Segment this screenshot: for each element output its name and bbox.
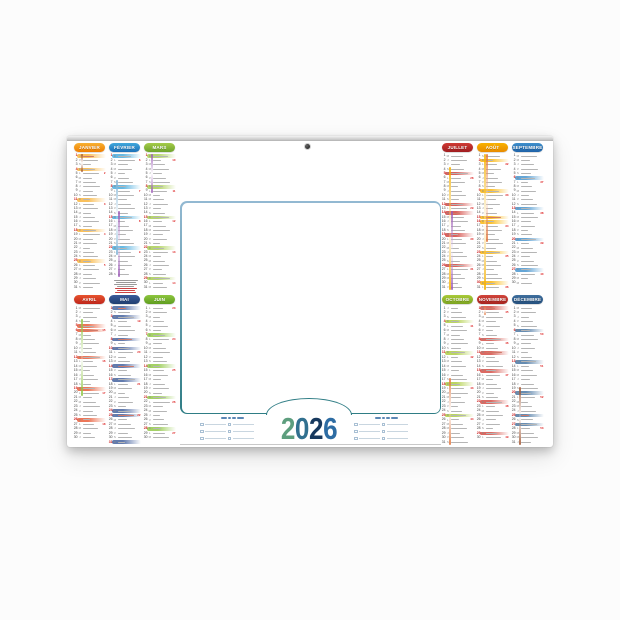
day-name-bar bbox=[451, 265, 464, 266]
day-letter: S bbox=[148, 360, 152, 363]
day-name-bar bbox=[486, 321, 496, 322]
day-name-bar bbox=[451, 221, 468, 222]
day-letter: S bbox=[113, 311, 117, 314]
day-number: 28 bbox=[108, 273, 113, 276]
month-days: 1D2L63M4M5J6V7S8D9L710M11M12J13V14S15D16… bbox=[108, 154, 141, 277]
month-label: DÉCEMBRE bbox=[514, 295, 541, 304]
day-name-bar bbox=[118, 415, 134, 416]
day-number: 31 bbox=[73, 286, 78, 289]
week-number: 44 bbox=[470, 418, 473, 421]
week-number: 40 bbox=[540, 273, 543, 276]
day-letter: M bbox=[148, 311, 152, 314]
day-letter: J bbox=[516, 347, 520, 350]
day-name-bar bbox=[153, 433, 165, 434]
day-name-bar bbox=[83, 312, 93, 313]
day-name-bar bbox=[83, 252, 94, 253]
day-name-bar bbox=[118, 357, 126, 358]
day-name-bar bbox=[83, 335, 91, 336]
day-name-bar bbox=[83, 226, 92, 227]
day-letter: M bbox=[516, 282, 520, 285]
day-name-bar bbox=[83, 195, 97, 196]
day-name-bar bbox=[153, 419, 164, 420]
day-number: 15 bbox=[108, 369, 113, 372]
day-letter: M bbox=[516, 185, 520, 188]
legend-line bbox=[233, 438, 254, 439]
day-name-bar bbox=[83, 424, 94, 425]
day-name-bar bbox=[118, 156, 131, 157]
day-name-bar bbox=[521, 308, 532, 309]
hanging-hole bbox=[305, 144, 310, 149]
day-letter: D bbox=[148, 277, 152, 280]
week-number: 52 bbox=[540, 396, 543, 399]
day-name-bar bbox=[83, 352, 96, 353]
day-letter: M bbox=[148, 378, 152, 381]
day-letter: S bbox=[113, 374, 117, 377]
week-number: 2 bbox=[104, 172, 106, 175]
day-name-bar bbox=[521, 283, 532, 284]
day-letter: V bbox=[481, 360, 485, 363]
day-letter: S bbox=[148, 242, 152, 245]
caption-dash bbox=[382, 417, 385, 419]
day-letter: D bbox=[481, 432, 485, 435]
day-name-bar bbox=[451, 433, 460, 434]
month-days: 1J2V3S4D5L416M7M8J9V10S11D12L4213M14M15J… bbox=[441, 306, 474, 445]
day-letter: J bbox=[148, 351, 152, 354]
day-name-bar bbox=[451, 415, 466, 416]
day-letter: M bbox=[516, 220, 520, 223]
school-vacation-bar bbox=[118, 211, 120, 277]
school-vacation-bar bbox=[81, 319, 83, 395]
day-name-bar bbox=[153, 230, 170, 231]
day-name-bar bbox=[153, 256, 161, 257]
day-name-bar bbox=[83, 317, 97, 318]
day-name-bar bbox=[83, 384, 91, 385]
day-letter: J bbox=[446, 369, 450, 372]
week-number: 18 bbox=[102, 423, 105, 426]
day-letter: M bbox=[481, 320, 485, 323]
day-name-bar bbox=[521, 178, 535, 179]
day-letter: J bbox=[148, 320, 152, 323]
day-number: 17 bbox=[441, 378, 446, 381]
day-letter: M bbox=[148, 410, 152, 413]
day-name-bar bbox=[486, 278, 502, 279]
month-header: MAI bbox=[109, 295, 140, 304]
day-letter: V bbox=[113, 268, 117, 271]
month-days: 1M2J3V4S5D6L157M8M9J10V11S12D13L1614M15M… bbox=[73, 306, 106, 441]
day-name-bar bbox=[153, 352, 170, 353]
day-name-bar bbox=[83, 397, 92, 398]
day-name-bar bbox=[83, 348, 92, 349]
day-name-bar bbox=[451, 339, 464, 340]
day-name-bar bbox=[486, 256, 493, 257]
day-number: 30 bbox=[511, 281, 516, 284]
month-column-10: OCTOBRE1J2V3S4D5L416M7M8J9V10S11D12L4213… bbox=[441, 295, 474, 445]
legend-line bbox=[205, 438, 226, 439]
day-name-bar bbox=[486, 419, 496, 420]
day-letter: D bbox=[481, 338, 485, 341]
day-letter: D bbox=[516, 360, 520, 363]
day-name-bar bbox=[521, 261, 534, 262]
caption-dash bbox=[221, 417, 227, 419]
day-row: 31M bbox=[143, 285, 176, 289]
day-row: 31D bbox=[108, 440, 141, 444]
day-letter: V bbox=[113, 369, 117, 372]
year-2026: 2026 bbox=[277, 415, 341, 443]
day-name-bar bbox=[486, 248, 496, 249]
day-name-bar bbox=[83, 173, 99, 174]
day-number: 15 bbox=[511, 369, 516, 372]
day-name-bar bbox=[521, 217, 538, 218]
day-name-bar bbox=[83, 321, 90, 322]
day-letter: V bbox=[113, 338, 117, 341]
day-name-bar bbox=[521, 402, 528, 403]
month-column-5: MAI1V2S3D4L195M6M7J8V9S10D11L2012M13M14J… bbox=[108, 295, 141, 445]
day-name-bar bbox=[521, 204, 537, 205]
day-name-bar bbox=[83, 287, 93, 288]
day-letter: S bbox=[148, 329, 152, 332]
week-number: 9 bbox=[139, 251, 141, 254]
day-letter: M bbox=[516, 307, 520, 310]
day-number: 15 bbox=[73, 369, 78, 372]
week-number: 34 bbox=[505, 225, 508, 228]
day-name-bar bbox=[153, 269, 162, 270]
day-name-bar bbox=[521, 191, 536, 192]
day-letter: S bbox=[516, 356, 520, 359]
day-letter: L bbox=[113, 414, 117, 417]
day-name-bar bbox=[486, 226, 498, 227]
day-name-bar bbox=[521, 379, 530, 380]
day-letter: V bbox=[516, 351, 520, 354]
week-number: 13 bbox=[172, 251, 175, 254]
day-name-bar bbox=[153, 221, 162, 222]
day-name-bar bbox=[153, 388, 169, 389]
day-letter: S bbox=[516, 233, 520, 236]
day-name-bar bbox=[118, 361, 130, 362]
day-name-bar bbox=[118, 397, 129, 398]
day-row: 31V bbox=[441, 285, 474, 289]
week-number: 38 bbox=[540, 212, 543, 215]
week-number: 53 bbox=[540, 427, 543, 430]
month-column-11: NOVEMBRE1D2L453M4M5J6V7S8D9L4610M11M12J1… bbox=[476, 295, 509, 441]
day-letter: J bbox=[516, 378, 520, 381]
week-number: 8 bbox=[139, 220, 141, 223]
month-label: FÉVRIER bbox=[114, 143, 135, 152]
day-letter: L bbox=[113, 383, 117, 386]
day-name-bar bbox=[118, 239, 130, 240]
month-label: JUILLET bbox=[448, 143, 468, 152]
day-letter: M bbox=[113, 360, 117, 363]
day-name-bar bbox=[153, 195, 160, 196]
legend-caption-marks bbox=[354, 417, 418, 419]
day-number: 30 bbox=[476, 436, 481, 439]
day-name-bar bbox=[486, 357, 495, 358]
day-name-bar bbox=[521, 239, 536, 240]
week-number: 16 bbox=[102, 360, 105, 363]
day-letter: M bbox=[113, 163, 117, 166]
day-number: 31 bbox=[511, 441, 516, 444]
day-name-bar bbox=[451, 419, 459, 420]
day-number: 31 bbox=[108, 441, 113, 444]
day-name-bar bbox=[83, 186, 100, 187]
month-column-3: MARS1D2L103M4M5J6V7S8D9L1110M11M12J13V14… bbox=[143, 143, 176, 290]
day-name-bar bbox=[118, 217, 132, 218]
month-header: JUIN bbox=[144, 295, 175, 304]
month-column-4: AVRIL1M2J3V4S5D6L157M8M9J10V11S12D13L161… bbox=[73, 295, 106, 441]
day-name-bar bbox=[153, 375, 168, 376]
day-letter: J bbox=[148, 414, 152, 417]
day-name-bar bbox=[486, 283, 495, 284]
day-letter: V bbox=[446, 311, 450, 314]
day-row: 28S bbox=[108, 272, 141, 276]
day-name-bar bbox=[118, 317, 134, 318]
month-header: AOÛT bbox=[477, 143, 508, 152]
day-name-bar bbox=[486, 243, 503, 244]
day-row: 31L36 bbox=[476, 285, 509, 289]
day-letter: M bbox=[148, 436, 152, 439]
day-letter: V bbox=[481, 423, 485, 426]
day-name-bar bbox=[118, 437, 132, 438]
week-number: 50 bbox=[540, 333, 543, 336]
day-letter: M bbox=[78, 432, 82, 435]
year-digit: 2 bbox=[309, 415, 323, 443]
day-letter: L bbox=[481, 436, 485, 439]
day-name-bar bbox=[153, 164, 165, 165]
day-letter: M bbox=[516, 338, 520, 341]
legend-line bbox=[387, 424, 408, 425]
day-name-bar bbox=[451, 424, 463, 425]
day-name-bar bbox=[521, 433, 534, 434]
legend-square bbox=[228, 437, 232, 441]
day-number: 30 bbox=[143, 436, 148, 439]
day-name-bar bbox=[118, 330, 135, 331]
day-name-bar bbox=[83, 437, 95, 438]
caption-dash bbox=[228, 417, 231, 419]
week-number: 4 bbox=[104, 233, 106, 236]
month-label: MARS bbox=[152, 143, 166, 152]
week-number: 33 bbox=[505, 194, 508, 197]
month-label: OCTOBRE bbox=[446, 295, 470, 304]
week-number: 46 bbox=[505, 342, 508, 345]
day-letter: M bbox=[113, 329, 117, 332]
caption-dash bbox=[237, 417, 244, 419]
day-name-bar bbox=[486, 375, 500, 376]
ad-insert-blank-area bbox=[182, 203, 440, 413]
day-name-bar bbox=[521, 195, 529, 196]
year-digit: 2 bbox=[281, 415, 295, 443]
day-row: 31J bbox=[511, 440, 544, 444]
legend-square bbox=[228, 430, 232, 434]
day-letter: M bbox=[481, 351, 485, 354]
day-name-bar bbox=[521, 411, 536, 412]
day-name-bar bbox=[521, 221, 531, 222]
month-header: MARS bbox=[144, 143, 175, 152]
day-name-bar bbox=[451, 256, 467, 257]
day-name-bar bbox=[521, 442, 531, 443]
day-letter: V bbox=[148, 325, 152, 328]
day-name-bar bbox=[118, 348, 129, 349]
day-name-bar bbox=[153, 317, 160, 318]
month-days: 1M2M3J4V5S6D7L378M9M10J11V12S13D14L3815M… bbox=[511, 154, 544, 286]
month-header: JANVIER bbox=[74, 143, 105, 152]
day-letter: V bbox=[78, 316, 82, 319]
day-letter: L bbox=[516, 365, 520, 368]
legend-square bbox=[228, 423, 232, 427]
day-name-bar bbox=[153, 379, 161, 380]
day-number: 17 bbox=[73, 378, 78, 381]
month-days: 1V2S3D4L195M6M7J8V9S10D11L2012M13M14J15V… bbox=[108, 306, 141, 445]
day-letter: S bbox=[113, 436, 117, 439]
month-header: AVRIL bbox=[74, 295, 105, 304]
day-number: 17 bbox=[511, 378, 516, 381]
day-name-bar bbox=[451, 178, 461, 179]
day-name-bar bbox=[521, 169, 538, 170]
day-letter: D bbox=[446, 351, 450, 354]
day-letter: D bbox=[148, 334, 152, 337]
day-name-bar bbox=[153, 411, 167, 412]
legend-line bbox=[205, 424, 226, 425]
day-letter: V bbox=[148, 356, 152, 359]
day-name-bar bbox=[118, 370, 127, 371]
day-name-bar bbox=[153, 397, 166, 398]
day-letter: L bbox=[516, 242, 520, 245]
day-name-bar bbox=[118, 375, 131, 376]
day-name-bar bbox=[153, 330, 161, 331]
week-number: 15 bbox=[102, 329, 105, 332]
week-number: 26 bbox=[172, 401, 175, 404]
day-name-bar bbox=[153, 308, 163, 309]
legend-text-bar bbox=[116, 282, 136, 283]
day-name-bar bbox=[118, 384, 128, 385]
month-days: 1M2J3V4S5D6L287M8M9J10V11S12D13L2914M15M… bbox=[441, 154, 474, 290]
day-letter: M bbox=[516, 311, 520, 314]
day-row: 31S bbox=[73, 285, 106, 289]
day-letter: S bbox=[148, 423, 152, 426]
day-letter: M bbox=[516, 374, 520, 377]
day-name-bar bbox=[153, 348, 166, 349]
day-letter: S bbox=[481, 427, 485, 430]
day-letter: J bbox=[78, 277, 82, 280]
month-header: FÉVRIER bbox=[109, 143, 140, 152]
day-name-bar bbox=[486, 437, 501, 438]
day-name-bar bbox=[451, 252, 463, 253]
day-name-bar bbox=[451, 164, 460, 165]
legend-row bbox=[354, 430, 418, 434]
day-name-bar bbox=[118, 321, 127, 322]
day-letter: V bbox=[446, 374, 450, 377]
week-number: 7 bbox=[139, 190, 141, 193]
day-name-bar bbox=[118, 402, 133, 403]
legend-line bbox=[359, 438, 380, 439]
week-number: 5 bbox=[104, 264, 106, 267]
day-name-bar bbox=[153, 335, 165, 336]
day-name-bar bbox=[451, 442, 468, 443]
day-name-bar bbox=[451, 348, 461, 349]
day-name-bar bbox=[486, 330, 493, 331]
legend-square bbox=[354, 423, 358, 427]
day-name-bar bbox=[153, 370, 164, 371]
legend-line bbox=[233, 431, 254, 432]
week-number: 30 bbox=[470, 238, 473, 241]
day-name-bar bbox=[521, 164, 534, 165]
legend-text-bar bbox=[117, 286, 134, 287]
day-letter: V bbox=[148, 207, 152, 210]
day-letter: J bbox=[446, 307, 450, 310]
month-header: JUILLET bbox=[442, 143, 473, 152]
day-name-bar bbox=[451, 243, 466, 244]
day-name-bar bbox=[521, 330, 530, 331]
year-digit: 0 bbox=[295, 415, 309, 443]
school-holidays-legend bbox=[111, 280, 140, 295]
day-letter: M bbox=[446, 360, 450, 363]
day-number: 31 bbox=[476, 286, 481, 289]
day-letter: L bbox=[148, 401, 152, 404]
legend-text-bar bbox=[115, 292, 136, 293]
day-name-bar bbox=[83, 160, 98, 161]
day-row: 31S bbox=[441, 440, 474, 444]
day-name-bar bbox=[451, 230, 465, 231]
day-name-bar bbox=[83, 379, 98, 380]
day-letter: L bbox=[148, 220, 152, 223]
day-letter: L bbox=[516, 334, 520, 337]
day-letter: M bbox=[113, 356, 117, 359]
day-name-bar bbox=[451, 186, 458, 187]
day-name-bar bbox=[83, 156, 94, 157]
day-name-bar bbox=[153, 243, 160, 244]
day-name-bar bbox=[153, 339, 169, 340]
day-name-bar bbox=[451, 343, 468, 344]
day-letter: M bbox=[516, 343, 520, 346]
day-name-bar bbox=[153, 287, 167, 288]
day-name-bar bbox=[486, 195, 503, 196]
day-letter: S bbox=[113, 273, 117, 276]
legend-row bbox=[354, 423, 418, 427]
day-letter: V bbox=[113, 401, 117, 404]
month-column-9: SEPTEMBRE1M2M3J4V5S6D7L378M9M10J11V12S13… bbox=[511, 143, 544, 286]
day-name-bar bbox=[153, 204, 168, 205]
day-letter: S bbox=[78, 255, 82, 258]
day-letter: M bbox=[113, 419, 117, 422]
day-name-bar bbox=[451, 191, 462, 192]
school-vacation-bar bbox=[451, 211, 453, 290]
day-name-bar bbox=[521, 388, 538, 389]
week-number: 23 bbox=[172, 307, 175, 310]
day-name-bar bbox=[83, 357, 100, 358]
day-name-bar bbox=[451, 156, 463, 157]
day-letter: M bbox=[113, 255, 117, 258]
day-name-bar bbox=[451, 182, 465, 183]
day-name-bar bbox=[118, 243, 134, 244]
week-number: 29 bbox=[470, 207, 473, 210]
day-letter: S bbox=[78, 414, 82, 417]
day-name-bar bbox=[451, 379, 467, 380]
day-letter: M bbox=[78, 307, 82, 310]
day-letter: S bbox=[481, 334, 485, 337]
day-name-bar bbox=[486, 388, 501, 389]
day-name-bar bbox=[486, 397, 498, 398]
day-name-bar bbox=[521, 419, 533, 420]
day-letter: S bbox=[446, 316, 450, 319]
day-name-bar bbox=[521, 274, 535, 275]
day-number: 15 bbox=[441, 369, 446, 372]
day-name-bar bbox=[521, 357, 532, 358]
day-letter: L bbox=[148, 338, 152, 341]
day-letter: S bbox=[113, 343, 117, 346]
day-name-bar bbox=[83, 283, 100, 284]
month-days: 1S2D3L324M5M6J7V8S9D10L3311M12M13J14V15S… bbox=[476, 154, 509, 290]
day-letter: D bbox=[148, 396, 152, 399]
school-vacation-bar bbox=[81, 154, 83, 172]
day-letter: D bbox=[148, 365, 152, 368]
